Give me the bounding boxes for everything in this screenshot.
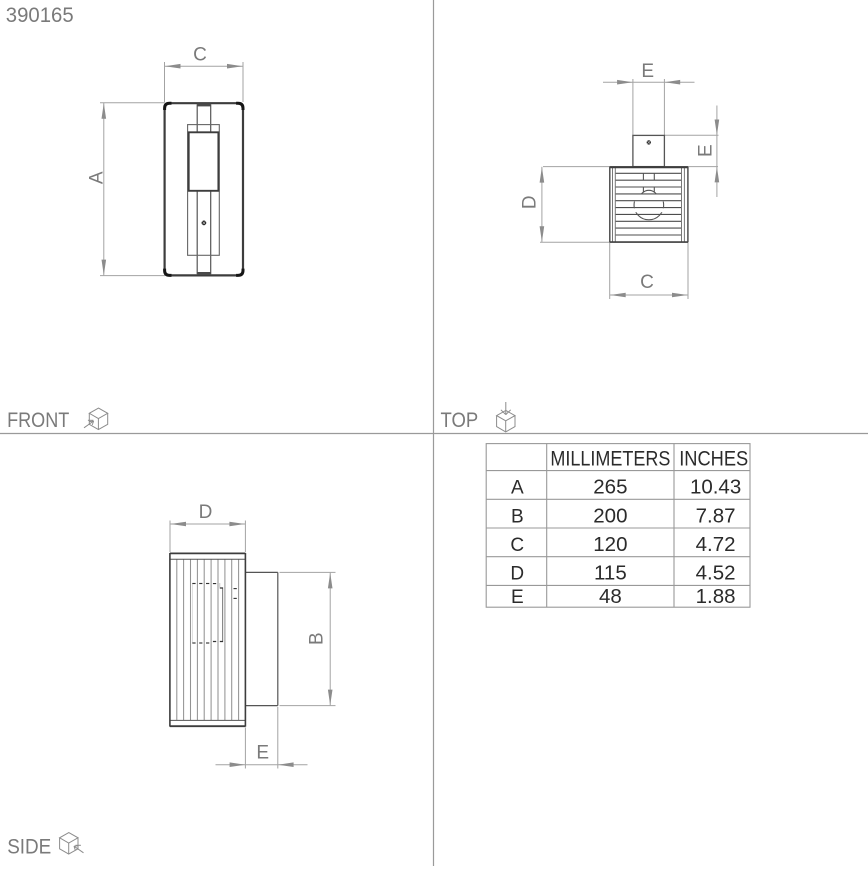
svg-text:FRONT: FRONT (7, 408, 69, 432)
svg-text:D: D (510, 564, 524, 585)
svg-text:115: 115 (594, 562, 627, 585)
svg-text:48: 48 (599, 585, 622, 608)
svg-text:E: E (695, 144, 716, 157)
svg-text:200: 200 (593, 504, 627, 527)
svg-text:1.88: 1.88 (696, 585, 736, 608)
svg-text:SIDE: SIDE (7, 834, 51, 858)
svg-text:TOP: TOP (441, 408, 479, 432)
svg-text:A: A (87, 171, 108, 184)
svg-text:E: E (256, 743, 269, 764)
svg-text:7.87: 7.87 (696, 504, 736, 527)
svg-text:C: C (640, 272, 654, 293)
svg-text:4.72: 4.72 (696, 533, 736, 556)
svg-text:B: B (511, 506, 524, 527)
svg-text:A: A (511, 478, 524, 499)
svg-text:D: D (199, 502, 213, 523)
svg-text:120: 120 (593, 533, 627, 556)
svg-text:E: E (641, 61, 654, 82)
svg-text:MILLIMETERS: MILLIMETERS (550, 448, 670, 471)
svg-text:C: C (193, 45, 207, 66)
svg-text:390165: 390165 (6, 3, 74, 27)
svg-text:B: B (307, 632, 328, 645)
svg-text:E: E (511, 587, 524, 608)
svg-text:4.52: 4.52 (696, 562, 736, 585)
svg-text:D: D (520, 195, 541, 209)
svg-text:INCHES: INCHES (679, 448, 748, 471)
svg-text:265: 265 (593, 476, 627, 499)
svg-text:10.43: 10.43 (690, 476, 741, 499)
svg-text:C: C (510, 535, 524, 556)
